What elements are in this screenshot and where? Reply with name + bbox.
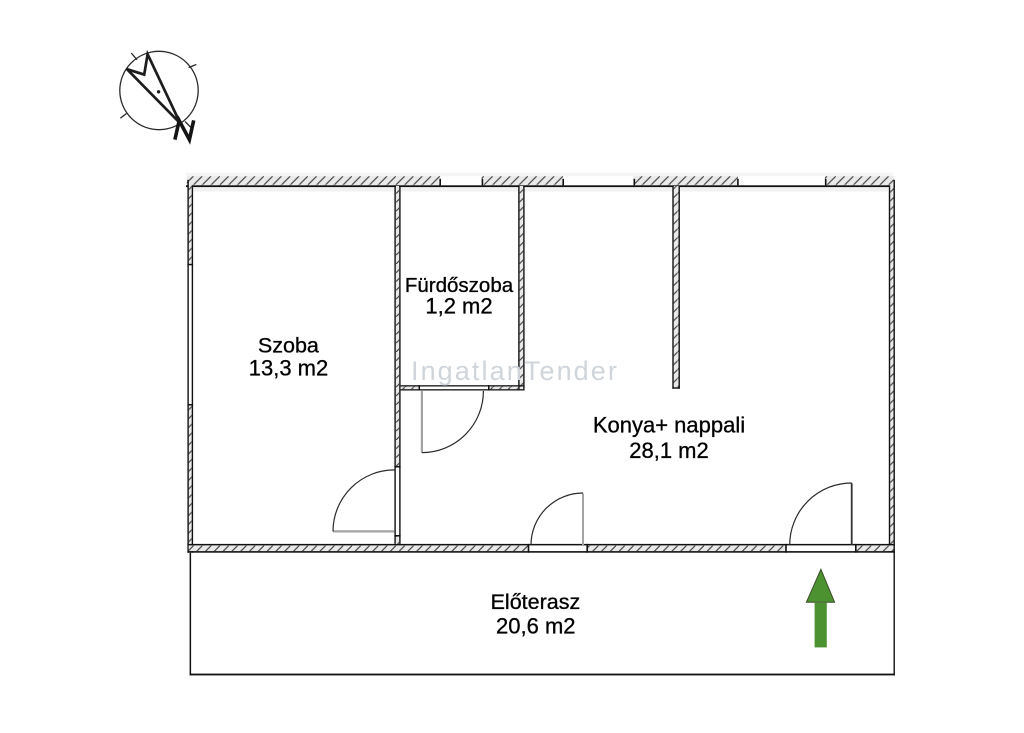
svg-text:Előterasz: Előterasz — [491, 590, 581, 614]
svg-text:28,1 m2: 28,1 m2 — [629, 438, 709, 463]
svg-text:Konya+ nappali: Konya+ nappali — [593, 413, 745, 438]
svg-text:13,3 m2: 13,3 m2 — [249, 355, 329, 380]
svg-text:Szoba: Szoba — [258, 334, 319, 358]
svg-text:1,2 m2: 1,2 m2 — [425, 294, 492, 319]
svg-text:20,6 m2: 20,6 m2 — [496, 613, 576, 638]
svg-text:IngatlanTender: IngatlanTender — [411, 356, 619, 386]
